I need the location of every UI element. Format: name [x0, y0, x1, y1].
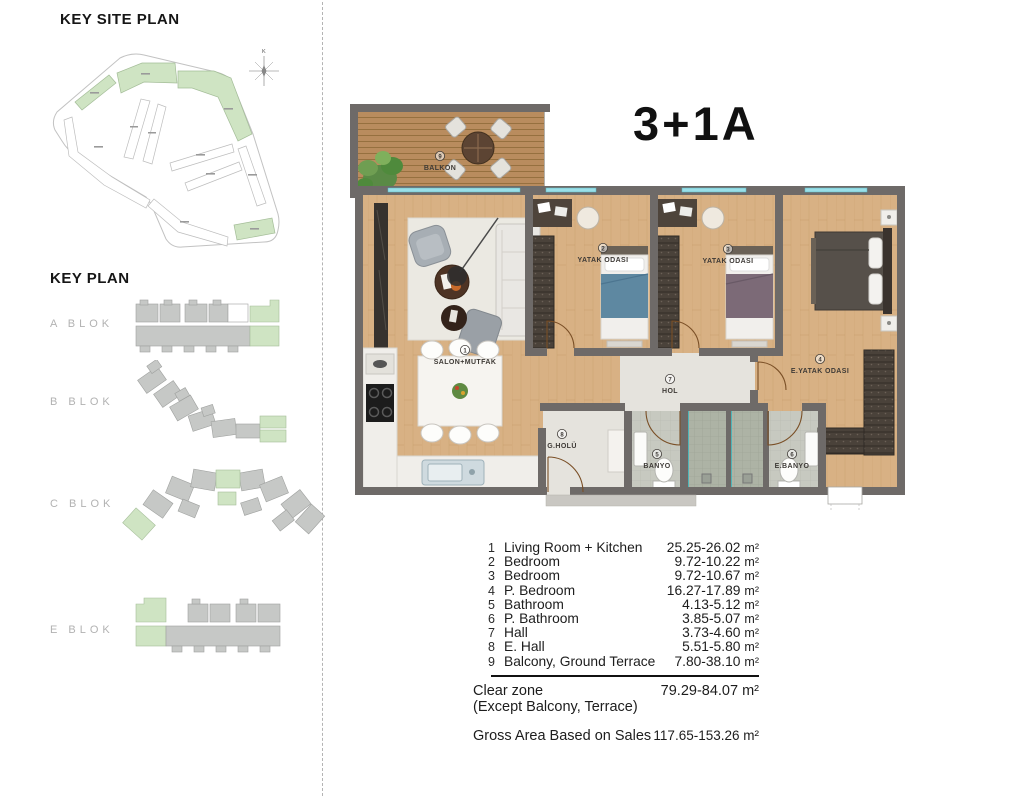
- master-wardrobe-right: [864, 350, 894, 455]
- legend-row: 8 E. Hall 5.51-5.80 m²: [473, 640, 759, 654]
- legend-row: 9 Balcony, Ground Terrace 7.80-38.10 m²: [473, 655, 759, 669]
- svg-text:E.BANYO: E.BANYO: [775, 463, 810, 470]
- floor-plan: 9 BALKON 1 SALON+MUTFAK 2 YATAK ODASI 3 …: [350, 100, 915, 510]
- gross-area-row: Gross Area Based on Sales 117.65-153.26 …: [473, 728, 759, 744]
- legend-row-unit: m²: [744, 541, 759, 555]
- legend-row-value: 9.72-10.22: [674, 555, 740, 569]
- legend-row-label: Living Room + Kitchen: [504, 541, 667, 555]
- compass-icon: [249, 56, 279, 86]
- bathroom-sink: [634, 432, 647, 466]
- legend-row-label: P. Bathroom: [504, 612, 682, 626]
- legend-row: 2 Bedroom 9.72-10.22 m²: [473, 555, 759, 569]
- legend-row-label: Bedroom: [504, 569, 674, 583]
- keyplan-label-a-blok: A BLOK: [50, 318, 113, 330]
- legend-row: 5 Bathroom 4.13-5.12 m²: [473, 598, 759, 612]
- keyplan-label-c-blok: C BLOK: [50, 498, 114, 510]
- legend-row-unit: m²: [744, 584, 759, 598]
- legend-row-value: 3.85-5.07: [682, 612, 740, 626]
- bedroom2-chair: [577, 207, 599, 229]
- legend-row-value: 5.51-5.80: [682, 640, 740, 654]
- compass-label: K: [262, 49, 266, 55]
- legend-row-num: 4: [473, 584, 495, 598]
- clear-zone-row: Clear zone 79.29-84.07 m²: [473, 684, 759, 699]
- keyplan-diagram-b-blok: [132, 360, 292, 448]
- legend-row-value: 9.72-10.67: [674, 569, 740, 583]
- legend-divider-rule: [491, 675, 759, 677]
- keyplan-diagram-c-blok: [122, 462, 327, 550]
- svg-text:E.YATAK ODASI: E.YATAK ODASI: [791, 368, 849, 375]
- key-site-plan-map: K: [42, 42, 298, 248]
- legend-row-value: 3.73-4.60: [682, 626, 740, 640]
- clear-zone-value: 79.29-84.07 m²: [661, 684, 759, 699]
- legend-row-label: Bedroom: [504, 555, 674, 569]
- legend-row-unit: m²: [744, 598, 759, 612]
- svg-text:YATAK ODASI: YATAK ODASI: [703, 258, 754, 265]
- svg-text:G.HOLÜ: G.HOLÜ: [547, 441, 577, 450]
- svg-text:HOL: HOL: [662, 388, 678, 395]
- gross-area-label: Gross Area Based on Sales: [473, 728, 653, 744]
- svg-text:YATAK ODASI: YATAK ODASI: [578, 257, 629, 264]
- bedroom3-chair: [702, 207, 724, 229]
- keyplan-label-e-blok: E BLOK: [50, 624, 114, 636]
- legend-row-value: 16.27-17.89: [667, 584, 741, 598]
- floor-plan-sheet: KEY SITE PLAN: [0, 0, 1010, 800]
- legend-row: 3 Bedroom 9.72-10.67 m²: [473, 569, 759, 583]
- clear-zone-subnote: (Except Balcony, Terrace): [473, 699, 759, 715]
- legend-row-label: E. Hall: [504, 640, 682, 654]
- entry-porch: [546, 495, 696, 506]
- shower1-drain: [702, 474, 711, 483]
- legend-row-value: 4.13-5.12: [682, 598, 740, 612]
- legend-row-unit: m²: [744, 612, 759, 626]
- legend-row-unit: m²: [744, 569, 759, 583]
- terrace-niche: [828, 487, 862, 504]
- tv-wall-unit: [374, 203, 388, 353]
- keyplan-diagram-e-blok: [132, 596, 292, 656]
- legend-row-num: 9: [473, 655, 495, 669]
- svg-text:BALKON: BALKON: [424, 165, 456, 172]
- terrace-dashed-unit: [831, 504, 859, 510]
- master-bed: [811, 228, 892, 314]
- legend-row-label: Bathroom: [504, 598, 682, 612]
- panel-divider: [322, 2, 323, 796]
- legend-row: 6 P. Bathroom 3.85-5.07 m²: [473, 612, 759, 626]
- svg-text:BANYO: BANYO: [643, 463, 670, 470]
- legend-row-label: P. Bedroom: [504, 584, 667, 598]
- keyplan-diagram-a-blok: [132, 298, 282, 356]
- shower2-drain: [743, 474, 752, 483]
- legend-row: 4 P. Bedroom 16.27-17.89 m²: [473, 584, 759, 598]
- legend-row-num: 1: [473, 541, 495, 555]
- clear-zone-label: Clear zone: [473, 684, 661, 699]
- key-site-plan-heading: KEY SITE PLAN: [60, 11, 180, 28]
- legend-row: 1 Living Room + Kitchen 25.25-26.02 m²: [473, 541, 759, 555]
- legend-row-unit: m²: [744, 640, 759, 654]
- legend-row-label: Hall: [504, 626, 682, 640]
- legend-row-value: 7.80-38.10: [674, 655, 740, 669]
- legend-row-unit: m²: [744, 655, 759, 669]
- svg-text:SALON+MUTFAK: SALON+MUTFAK: [434, 359, 497, 366]
- key-plan-heading: KEY PLAN: [50, 270, 130, 287]
- legend-row-num: 3: [473, 569, 495, 583]
- bedroom3-wardrobe: [657, 236, 679, 348]
- legend-row-num: 2: [473, 555, 495, 569]
- legend-row-value: 25.25-26.02: [667, 541, 741, 555]
- keyplan-label-b-blok: B BLOK: [50, 396, 114, 408]
- legend-row-num: 7: [473, 626, 495, 640]
- bedroom2-wardrobe: [532, 236, 554, 348]
- legend-row-num: 5: [473, 598, 495, 612]
- legend-row: 7 Hall 3.73-4.60 m²: [473, 626, 759, 640]
- legend-row-unit: m²: [744, 555, 759, 569]
- area-legend: 1 Living Room + Kitchen 25.25-26.02 m² 2…: [473, 541, 759, 744]
- p-bathroom-sink: [805, 432, 818, 466]
- gross-area-value: 117.65-153.26 m²: [653, 728, 759, 743]
- legend-row-label: Balcony, Ground Terrace: [504, 655, 674, 669]
- legend-row-unit: m²: [744, 626, 759, 640]
- legend-row-num: 6: [473, 612, 495, 626]
- legend-row-num: 8: [473, 640, 495, 654]
